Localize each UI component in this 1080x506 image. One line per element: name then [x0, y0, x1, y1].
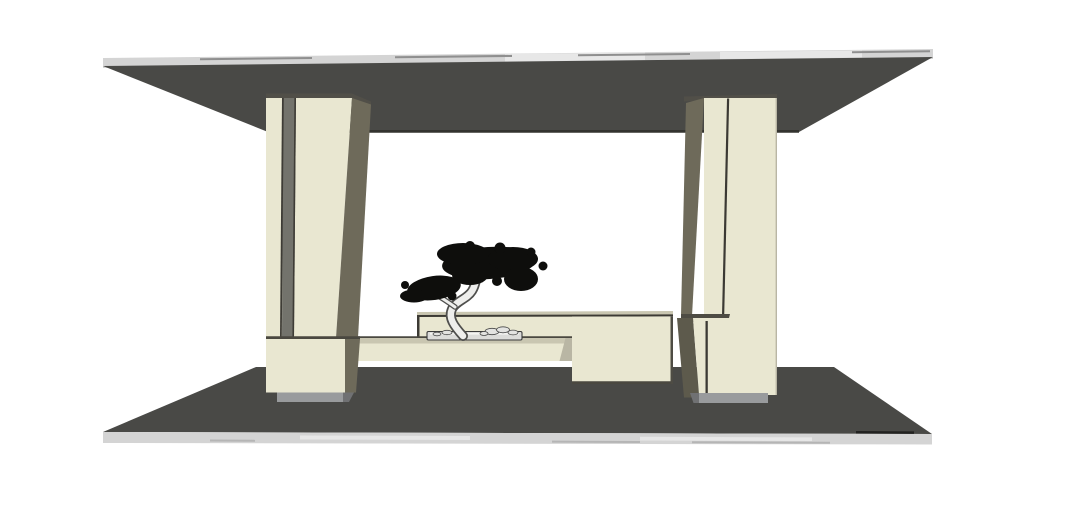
floor-edge-strip-highlight: [300, 436, 470, 441]
floor-seam-line: [856, 431, 914, 434]
floor-top-surface: [103, 367, 932, 434]
ceiling-underside: [103, 57, 933, 132]
right-column-plinth: [699, 393, 768, 403]
floor-slab: [103, 367, 932, 445]
left-column-lower-front: [266, 339, 345, 393]
left-column-plinth: [277, 393, 343, 403]
ceiling-slab: [103, 49, 933, 133]
right-column: [677, 94, 777, 403]
bench-shelf-front: [352, 344, 572, 362]
bench-block-front: [572, 317, 673, 384]
bench-block-right-edge: [671, 317, 674, 385]
scene-render: [0, 0, 1080, 506]
right-column-lower-seam: [706, 321, 708, 394]
ceiling-edge-strip-highlight: [720, 51, 862, 60]
bench-back-panel-left-edge: [417, 316, 420, 340]
render-viewport: [0, 0, 1080, 506]
right-column-right-edge: [776, 98, 777, 395]
floor-edge-strip-highlight: [640, 437, 812, 441]
right-column-upper-front: [692, 98, 777, 320]
bench-block-bottom-line: [572, 381, 673, 384]
floor-edge-seam: [210, 440, 255, 442]
left-column: [266, 94, 371, 403]
floor-edge-seam: [552, 441, 640, 443]
